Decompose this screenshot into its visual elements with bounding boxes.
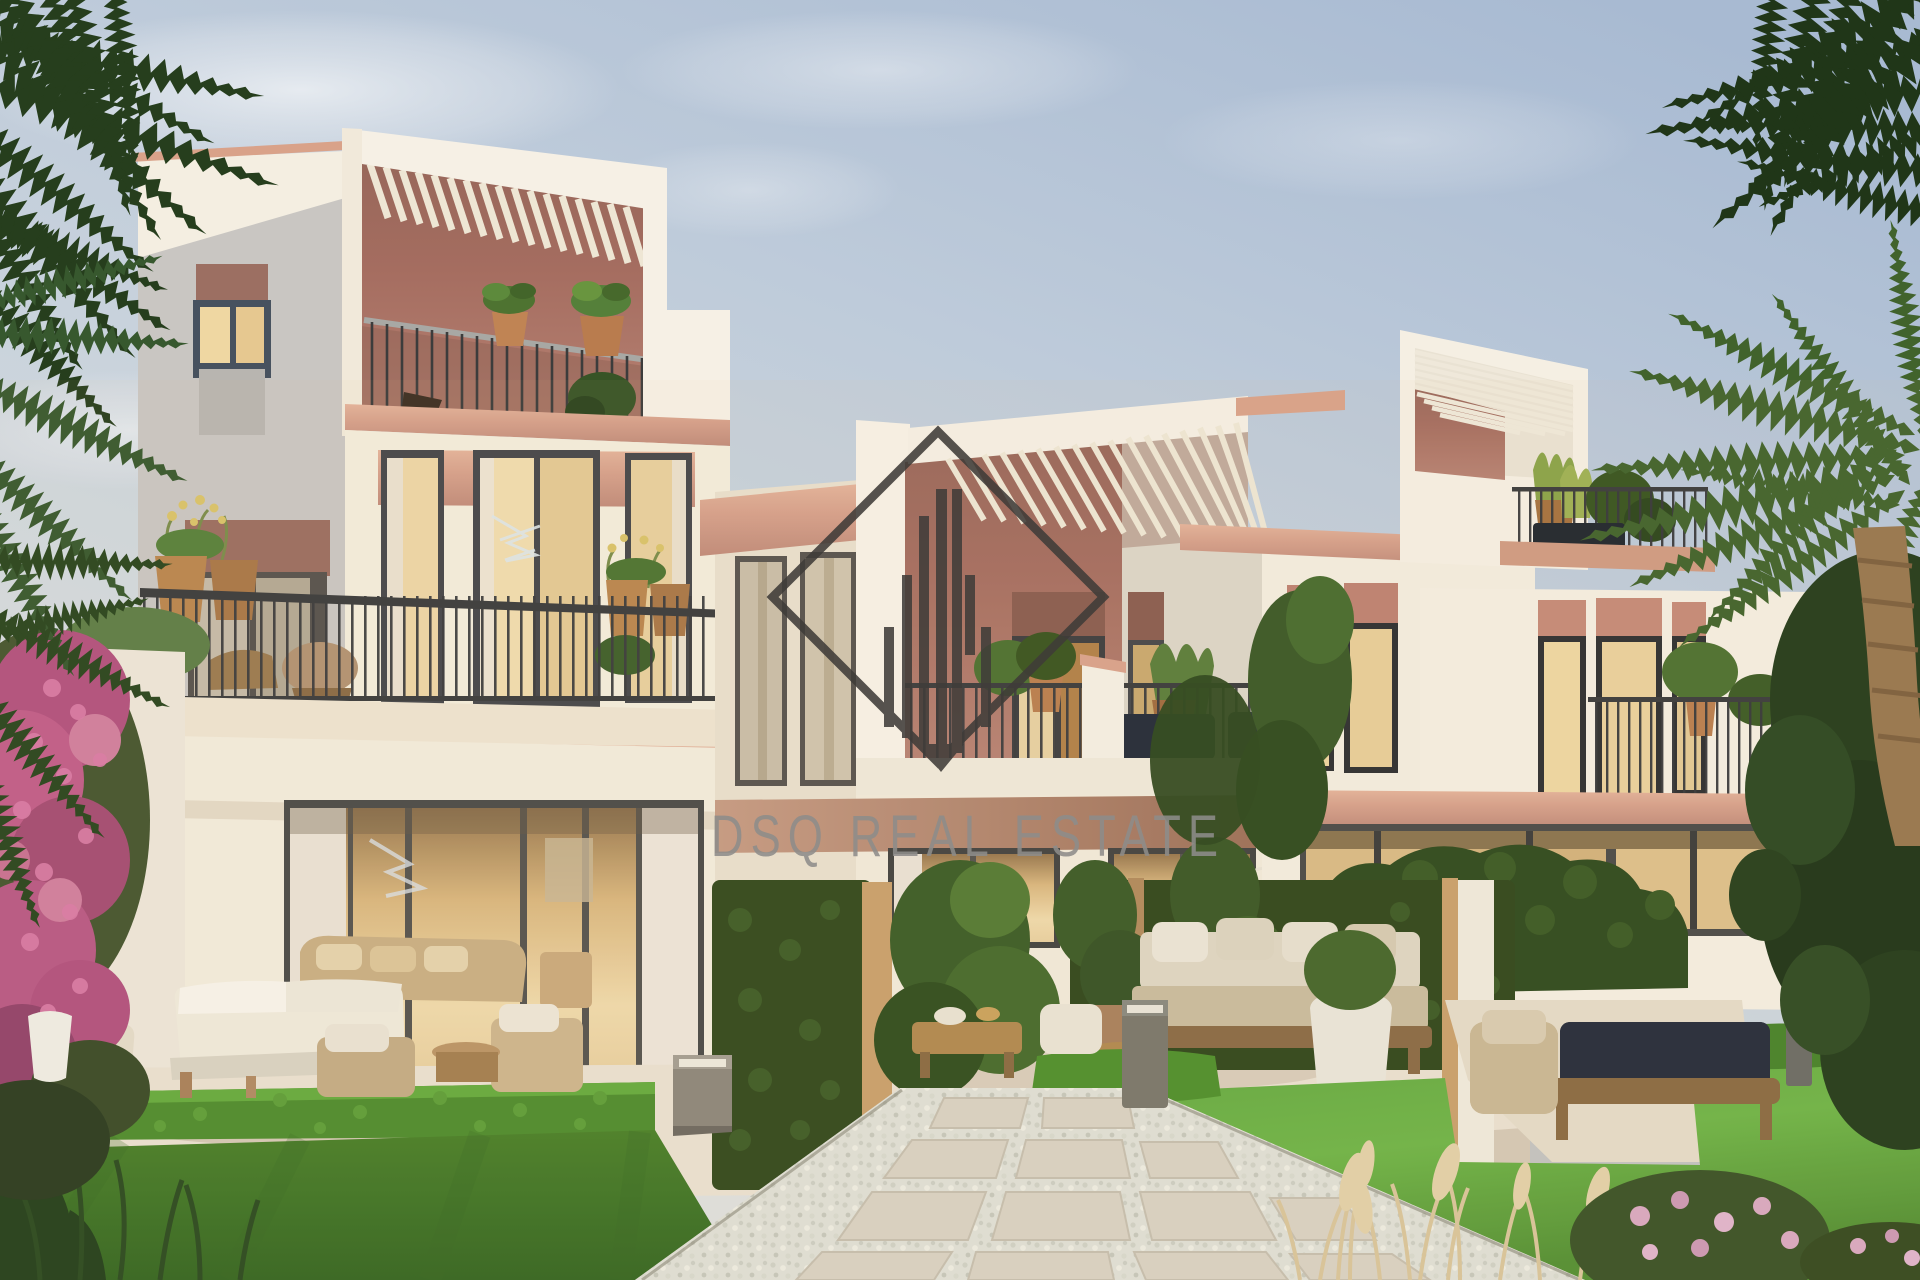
svg-text:DSQ REAL ESTATE: DSQ REAL ESTATE <box>711 805 1225 870</box>
